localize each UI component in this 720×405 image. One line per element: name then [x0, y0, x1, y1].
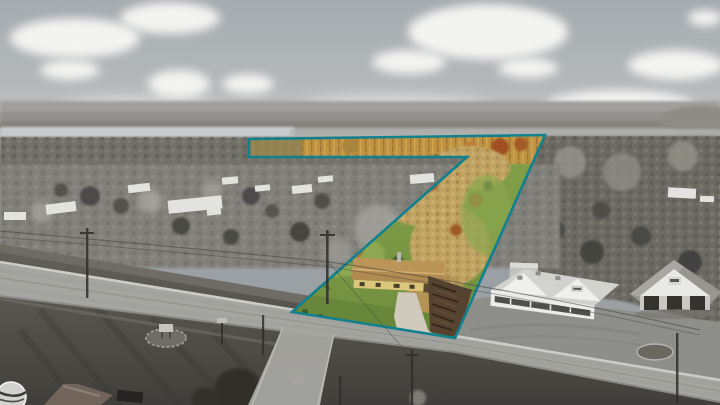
house-roof [700, 196, 714, 203]
chimney [397, 252, 402, 262]
terrain-scene [0, 0, 720, 405]
aerial-photo [0, 0, 720, 405]
entrance-sign [159, 324, 173, 332]
house-roof [668, 187, 696, 198]
house-roof [4, 212, 26, 220]
garage-bays [644, 296, 705, 310]
